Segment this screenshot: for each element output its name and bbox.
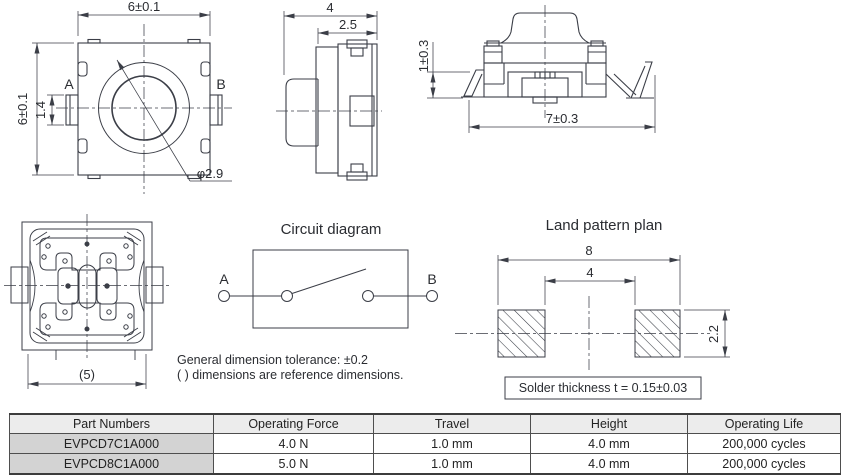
dim-leg-height: 1±0.3 [416, 40, 431, 72]
table-row: EVPCD7C1A000 4.0 N 1.0 mm 4.0 mm 200,000… [10, 434, 841, 454]
terminal-a-label: A [64, 76, 74, 92]
operating-life-cell: 200,000 cycles [688, 454, 841, 475]
land-pattern-title: Land pattern plan [546, 217, 663, 234]
center-lines [4, 214, 170, 358]
table-header-row: Part Numbers Operating Force Travel Heig… [10, 414, 841, 434]
general-notes: General dimension tolerance: ±0.2 ( ) di… [177, 353, 404, 382]
spec-table: Part Numbers Operating Force Travel Heig… [9, 413, 841, 475]
side-view-drawing: 4 2.5 [276, 0, 382, 180]
circuit-label-b: B [427, 271, 436, 287]
dim-leg-span: 7±0.3 [546, 111, 578, 126]
circuit-title: Circuit diagram [281, 221, 382, 238]
dim-depth: 4 [326, 0, 333, 15]
part-number-cell: EVPCD7C1A000 [10, 434, 214, 454]
dim-ref-width: (5) [79, 367, 95, 382]
operating-force-cell: 5.0 N [214, 454, 374, 475]
dim-terminal-width: 1.4 [33, 101, 48, 119]
solder-note-text: Solder thickness t = 0.15±0.03 [519, 381, 687, 395]
terminal-b-shape [210, 95, 222, 125]
dim-body-depth: 2.5 [339, 17, 357, 32]
height-cell: 4.0 mm [531, 454, 688, 475]
circuit-diagram: Circuit diagram A B [219, 221, 438, 328]
terminal-a-shape [66, 95, 78, 125]
travel-cell: 1.0 mm [374, 434, 531, 454]
column-header-operating-life: Operating Life [688, 414, 841, 434]
table-row: EVPCD8C1A000 5.0 N 1.0 mm 4.0 mm 200,000… [10, 454, 841, 475]
left-pad [498, 310, 545, 357]
terminal-b-label: B [216, 76, 225, 92]
dim-pad-outer: 8 [585, 243, 592, 258]
right-pad [635, 310, 680, 357]
column-header-part-numbers: Part Numbers [10, 414, 214, 434]
dim-top-width: 6±0.1 [128, 0, 160, 14]
note-reference-dims: ( ) dimensions are reference dimensions. [177, 368, 404, 382]
land-pattern-plan: Land pattern plan 8 4 2.2 Solder thickne… [455, 217, 730, 399]
front-view-drawing: 1±0.3 7±0.3 [416, 5, 655, 133]
dim-button-diameter: φ2.9 [197, 166, 224, 181]
dim-pad-height: 2.2 [706, 325, 721, 343]
technical-drawings: 6±0.1 6±0.1 1.4 A B φ2.9 [0, 0, 847, 410]
part-number-cell: EVPCD8C1A000 [10, 454, 214, 475]
dim-lines [284, 11, 377, 75]
height-cell: 4.0 mm [531, 434, 688, 454]
travel-cell: 1.0 mm [374, 454, 531, 475]
dim-pad-gap: 4 [586, 265, 593, 280]
circuit-label-a: A [219, 271, 229, 287]
dim-lines [32, 11, 232, 181]
column-header-height: Height [531, 414, 688, 434]
operating-force-cell: 4.0 N [214, 434, 374, 454]
datasheet-page: 6±0.1 6±0.1 1.4 A B φ2.9 [0, 0, 847, 476]
operating-life-cell: 200,000 cycles [688, 434, 841, 454]
column-header-operating-force: Operating Force [214, 414, 374, 434]
bottom-view-drawing: (5) [4, 214, 170, 389]
top-view-drawing: 6±0.1 6±0.1 1.4 A B φ2.9 [15, 0, 232, 194]
dim-left-height: 6±0.1 [15, 93, 30, 125]
switch-blade [292, 269, 366, 294]
note-tolerance: General dimension tolerance: ±0.2 [177, 353, 368, 367]
column-header-travel: Travel [374, 414, 531, 434]
